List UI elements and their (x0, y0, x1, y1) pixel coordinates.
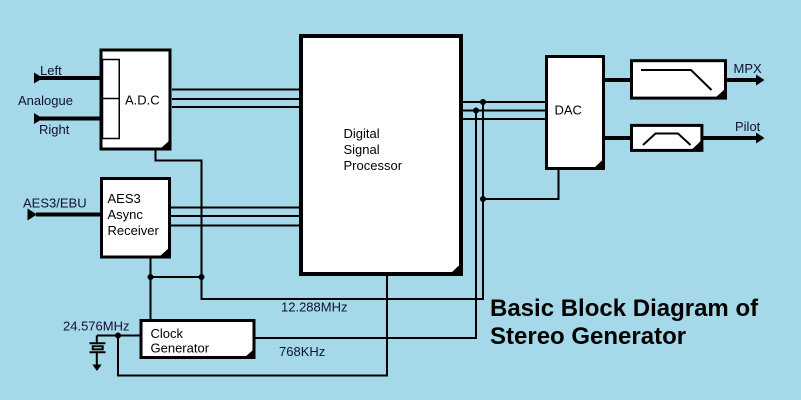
svg-text:Analogue: Analogue (18, 93, 73, 108)
svg-text:24.576MHz: 24.576MHz (63, 319, 129, 334)
svg-text:Async: Async (108, 207, 144, 222)
svg-text:Clock: Clock (151, 326, 184, 341)
svg-text:Right: Right (39, 122, 70, 137)
svg-text:A.D.C: A.D.C (125, 93, 160, 108)
svg-text:MPX: MPX (734, 61, 763, 76)
svg-text:Generator: Generator (151, 341, 210, 356)
svg-text:Stereo Generator: Stereo Generator (490, 323, 686, 350)
svg-text:DAC: DAC (555, 103, 582, 118)
svg-text:Processor: Processor (344, 158, 403, 173)
svg-text:Basic Block Diagram of: Basic Block Diagram of (490, 295, 759, 322)
svg-text:768KHz: 768KHz (279, 344, 325, 359)
svg-text:Receiver: Receiver (108, 223, 160, 238)
svg-text:AES3: AES3 (108, 191, 141, 206)
svg-text:Pilot: Pilot (735, 119, 761, 134)
svg-text:Left: Left (40, 63, 62, 78)
svg-text:Digital: Digital (344, 126, 380, 141)
svg-text:AES3/EBU: AES3/EBU (23, 196, 87, 211)
svg-text:12.288MHz: 12.288MHz (281, 300, 347, 315)
svg-text:Signal: Signal (344, 142, 380, 157)
